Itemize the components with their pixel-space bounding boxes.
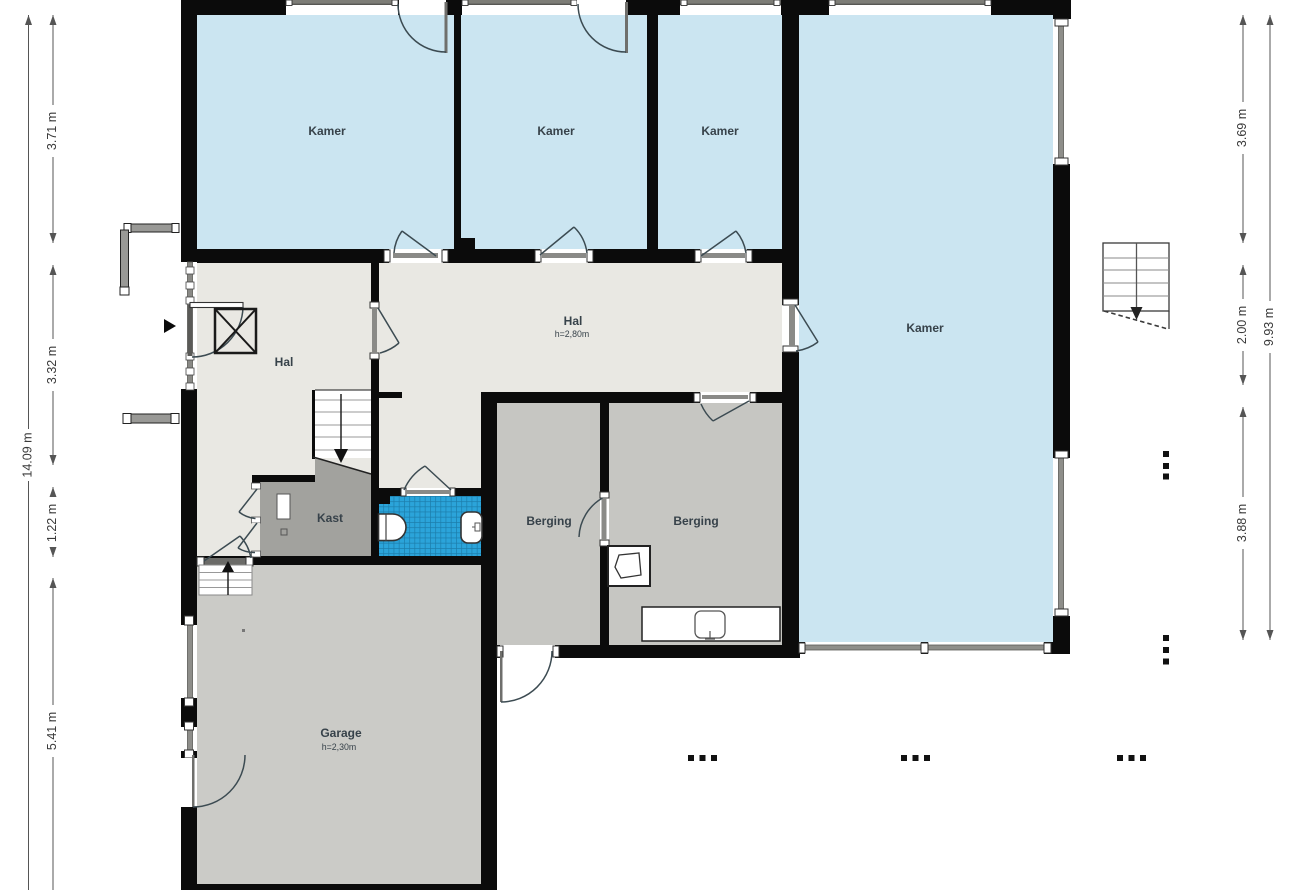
svg-text:3.88 m: 3.88 m bbox=[1235, 504, 1249, 542]
svg-text:Kamer: Kamer bbox=[701, 124, 739, 138]
svg-text:Hal: Hal bbox=[564, 314, 583, 328]
svg-text:h=2,30m: h=2,30m bbox=[322, 742, 356, 752]
svg-text:3.32 m: 3.32 m bbox=[45, 346, 59, 384]
svg-text:5.41 m: 5.41 m bbox=[45, 712, 59, 750]
svg-text:Garage: Garage bbox=[320, 726, 362, 740]
svg-text:3.71 m: 3.71 m bbox=[45, 112, 59, 150]
svg-text:Kast: Kast bbox=[317, 511, 343, 525]
svg-text:h=2,80m: h=2,80m bbox=[555, 329, 589, 339]
svg-text:Hal: Hal bbox=[275, 355, 294, 369]
svg-text:Kamer: Kamer bbox=[308, 124, 346, 138]
svg-text:3.69 m: 3.69 m bbox=[1235, 109, 1249, 147]
svg-text:Kamer: Kamer bbox=[906, 321, 944, 335]
svg-text:Kamer: Kamer bbox=[537, 124, 575, 138]
svg-text:Berging: Berging bbox=[673, 514, 718, 528]
svg-text:2.00 m: 2.00 m bbox=[1235, 306, 1249, 344]
svg-text:14.09 m: 14.09 m bbox=[21, 432, 35, 477]
svg-text:9.93 m: 9.93 m bbox=[1262, 308, 1276, 346]
svg-text:1.22 m: 1.22 m bbox=[45, 504, 59, 542]
svg-text:Berging: Berging bbox=[526, 514, 571, 528]
